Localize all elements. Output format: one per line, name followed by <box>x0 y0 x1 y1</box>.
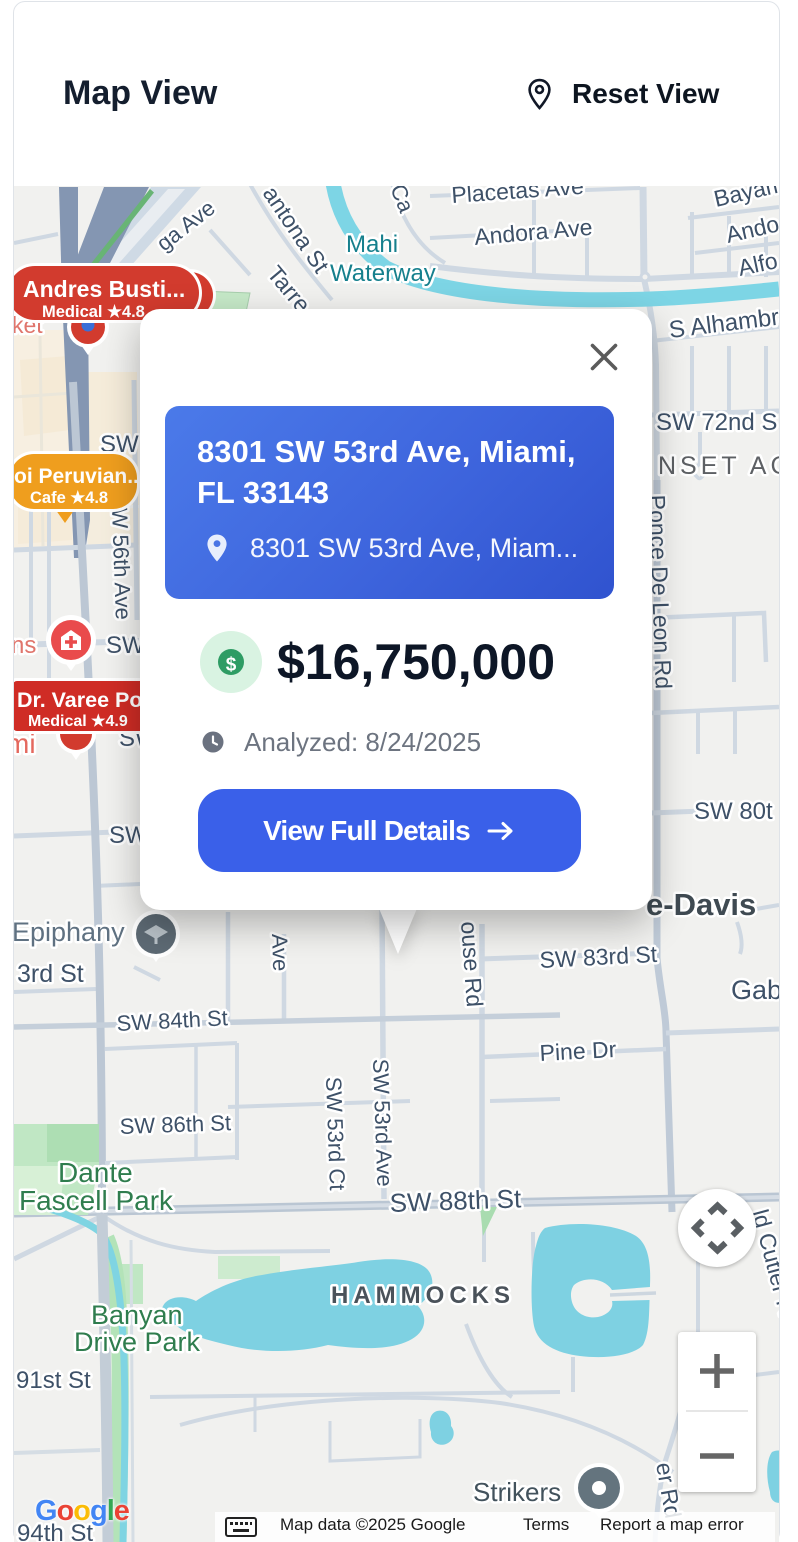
svg-text:Dante: Dante <box>58 1157 133 1188</box>
svg-text:e-Davis: e-Davis <box>646 887 756 922</box>
svg-text:Drive Park: Drive Park <box>74 1327 201 1357</box>
svg-text:SW 88th St: SW 88th St <box>389 1183 522 1218</box>
svg-text:Banyan: Banyan <box>91 1300 183 1330</box>
svg-text:Fascell Park: Fascell Park <box>19 1185 174 1216</box>
svg-text:Medical ★4.8: Medical ★4.8 <box>42 303 145 321</box>
svg-text:SW 53rd Ave: SW 53rd Ave <box>368 1058 397 1187</box>
svg-text:Cafe ★4.8: Cafe ★4.8 <box>30 489 108 507</box>
svg-text:Epiphany: Epiphany <box>14 917 125 947</box>
svg-text:3rd St: 3rd St <box>17 960 84 988</box>
svg-text:Waterway: Waterway <box>330 260 436 287</box>
svg-text:NSET AC: NSET AC <box>658 452 779 480</box>
svg-text:Mahi: Mahi <box>346 231 398 258</box>
svg-text:W 56th Ave: W 56th Ave <box>107 507 136 620</box>
svg-text:Ave: Ave <box>267 933 293 971</box>
svg-text:SW 53rd Ct: SW 53rd Ct <box>321 1076 350 1191</box>
svg-text:Strikers: Strikers <box>473 1477 561 1507</box>
svg-text:SW 80t: SW 80t <box>694 798 773 825</box>
svg-text:91st St: 91st St <box>16 1367 91 1394</box>
svg-text:SW 72nd S: SW 72nd S <box>656 409 777 436</box>
svg-text:$: $ <box>226 655 237 676</box>
svg-text:Dr. Varee Po...: Dr. Varee Po... <box>17 688 160 712</box>
svg-text:HAMMOCKS: HAMMOCKS <box>331 1282 515 1309</box>
svg-text:Gab: Gab <box>731 975 779 1005</box>
svg-text:oi Peruvian...: oi Peruvian... <box>14 465 145 488</box>
svg-text:Andres Busti...: Andres Busti... <box>23 276 185 302</box>
svg-text:ns: ns <box>14 632 36 659</box>
svg-text:Medical ★4.9: Medical ★4.9 <box>28 713 128 730</box>
svg-text:SW 86th St: SW 86th St <box>119 1110 231 1139</box>
svg-text:Pine Dr: Pine Dr <box>539 1036 617 1066</box>
